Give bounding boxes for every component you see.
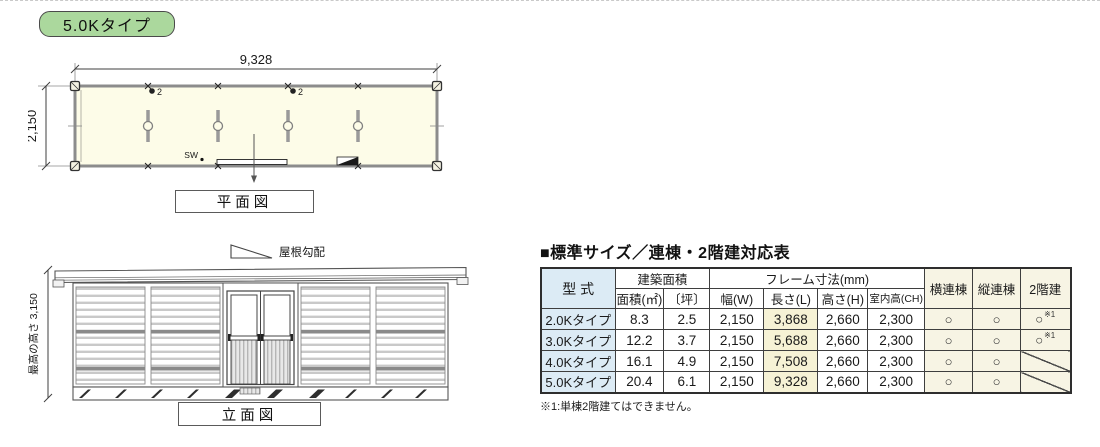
door-window-left: [231, 295, 257, 336]
cell-length: 9,328: [764, 372, 818, 393]
cell-ceiling: 2,300: [868, 372, 925, 393]
plan-width-dimension: 9,328: [71, 52, 441, 84]
fixture-count-1: 2: [157, 87, 162, 97]
plan-height-dimension-label: 2,150: [28, 110, 39, 143]
cell-area-tsubo: 3.7: [664, 330, 710, 351]
catalog-page: 5.0Kタイプ 9,328 2,150: [0, 0, 1100, 447]
cell-height: 2,660: [818, 330, 868, 351]
table-title: ■標準サイズ／連棟・2階建対応表: [540, 239, 1085, 263]
cell-width: 2,150: [710, 330, 764, 351]
cell-length: 7,508: [764, 351, 818, 372]
cell-nikai: ○※1: [1021, 330, 1071, 351]
type-badge: 5.0Kタイプ: [39, 11, 175, 37]
cell-area-m2: 16.1: [615, 351, 664, 372]
table-row: 4.0Kタイプ 16.1 4.9 2,150 7,508 2,660 2,300…: [541, 351, 1071, 372]
spec-table-section: ■標準サイズ／連棟・2階建対応表 型 式 建築面積 フレーム寸法(mm) 横連棟…: [540, 239, 1085, 414]
cell-tate: ○: [973, 372, 1021, 393]
elevation-caption: 立面図: [178, 402, 321, 426]
roof-slope-label: 屋根勾配: [279, 245, 325, 259]
header-nikaidate: 2階建: [1021, 268, 1071, 309]
cell-area-m2: 20.4: [615, 372, 664, 393]
cell-ceiling: 2,300: [868, 330, 925, 351]
header-model: 型 式: [541, 268, 615, 309]
cell-yoko: ○: [925, 330, 973, 351]
plan-width-dimension-label: 9,328: [240, 52, 273, 67]
cell-nikai: ○※1: [1021, 309, 1071, 330]
cell-area-m2: 12.2: [615, 330, 664, 351]
cell-model: 4.0Kタイプ: [541, 351, 615, 372]
header-tate-rento: 縦連棟: [973, 268, 1021, 309]
cell-yoko: ○: [925, 351, 973, 372]
cell-height: 2,660: [818, 351, 868, 372]
ramp-symbol: [337, 157, 358, 165]
header-height: 高さ(H): [818, 289, 868, 309]
floor-plan-caption-label: 平面図: [217, 191, 273, 212]
cell-model: 5.0Kタイプ: [541, 372, 615, 393]
table-row: 5.0Kタイプ 20.4 6.1 2,150 9,328 2,660 2,300…: [541, 372, 1071, 393]
table-row: 2.0Kタイプ 8.3 2.5 2,150 3,868 2,660 2,300 …: [541, 309, 1071, 330]
nikai-note: ※1: [1044, 331, 1055, 340]
cell-area-m2: 8.3: [615, 309, 664, 330]
nikai-mark: ○: [1035, 333, 1043, 348]
cell-height: 2,660: [818, 372, 868, 393]
floor-plan-caption: 平面図: [175, 190, 314, 213]
floor-plan-drawing: 9,328 2,150: [28, 46, 468, 194]
cell-tate: ○: [973, 330, 1021, 351]
header-ceiling: 室内高(CH): [868, 289, 925, 309]
elevation-caption-label: 立面図: [222, 404, 278, 425]
elevation-drawing: 屋根勾配 最高の高さ 3,150: [15, 234, 500, 409]
nikai-mark: ○: [1035, 312, 1043, 327]
cell-width: 2,150: [710, 372, 764, 393]
cell-tate: ○: [973, 309, 1021, 330]
elevation-height-dimension: 最高の高さ 3,150: [27, 266, 52, 402]
type-badge-label: 5.0Kタイプ: [63, 12, 151, 36]
cell-nikai: [1021, 351, 1071, 372]
cell-model: 3.0Kタイプ: [541, 330, 615, 351]
spec-table: 型 式 建築面積 フレーム寸法(mm) 横連棟 縦連棟 2階建 面積(㎡) 〔坪…: [540, 267, 1072, 394]
cell-width: 2,150: [710, 309, 764, 330]
cell-area-tsubo: 2.5: [664, 309, 710, 330]
header-length: 長さ(L): [764, 289, 818, 309]
cell-width: 2,150: [710, 351, 764, 372]
cell-length: 3,868: [764, 309, 818, 330]
door-window-right: [264, 295, 290, 336]
plan-door: [217, 160, 287, 165]
cell-area-tsubo: 4.9: [664, 351, 710, 372]
cell-model: 2.0Kタイプ: [541, 309, 615, 330]
entrance-door: [223, 283, 298, 387]
cell-length: 5,688: [764, 330, 818, 351]
elevation-height-label: 最高の高さ 3,150: [27, 293, 40, 375]
plan-outline: [75, 86, 437, 166]
table-row: 3.0Kタイプ 12.2 3.7 2,150 5,688 2,660 2,300…: [541, 330, 1071, 351]
plan-height-dimension: 2,150: [28, 82, 73, 170]
door-panel-right: [264, 340, 290, 384]
table-footnote: ※1:単棟2階建てはできません。: [540, 398, 1085, 414]
cell-yoko: ○: [925, 372, 973, 393]
cell-ceiling: 2,300: [868, 309, 925, 330]
nikai-note: ※1: [1044, 310, 1055, 319]
header-area-tsubo: 〔坪〕: [664, 289, 710, 309]
cell-area-tsubo: 6.1: [664, 372, 710, 393]
door-step: [240, 388, 260, 394]
cell-nikai: [1021, 372, 1071, 393]
header-frame-group: フレーム寸法(mm): [710, 268, 925, 289]
foundation: [73, 387, 448, 400]
door-panel-left: [231, 340, 257, 384]
roof-slope-symbol: 屋根勾配: [231, 245, 325, 259]
cell-tate: ○: [973, 351, 1021, 372]
fixture-count-2: 2: [298, 87, 303, 97]
header-area-m2: 面積(㎡): [615, 289, 664, 309]
cell-ceiling: 2,300: [868, 351, 925, 372]
cell-height: 2,660: [818, 309, 868, 330]
header-yoko-rento: 横連棟: [925, 268, 973, 309]
cell-yoko: ○: [925, 309, 973, 330]
header-width: 幅(W): [710, 289, 764, 309]
header-area-group: 建築面積: [615, 268, 710, 289]
switch-label: SW: [184, 150, 198, 160]
